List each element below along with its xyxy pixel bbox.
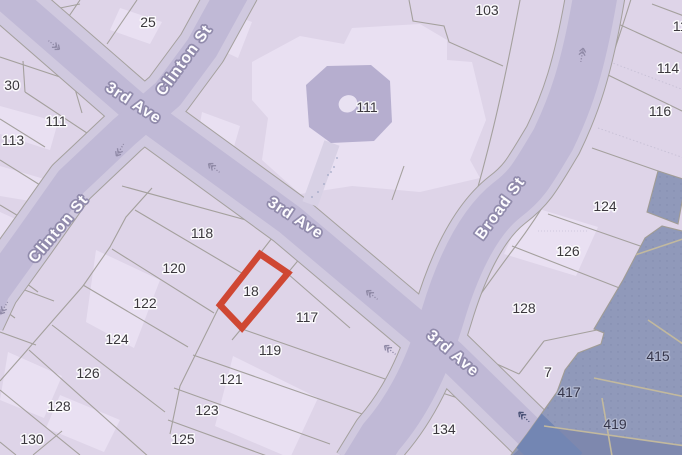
svg-text:18: 18 (243, 283, 259, 299)
svg-text:123: 123 (195, 402, 219, 418)
svg-text:103: 103 (475, 2, 499, 18)
svg-text:122: 122 (133, 295, 157, 311)
svg-text:130: 130 (20, 431, 44, 447)
svg-text:126: 126 (76, 365, 100, 381)
svg-text:124: 124 (105, 331, 129, 347)
svg-text:128: 128 (512, 300, 536, 316)
svg-text:117: 117 (296, 309, 319, 325)
svg-text:124: 124 (593, 198, 617, 214)
svg-text:417: 417 (557, 384, 581, 400)
svg-text:126: 126 (556, 243, 580, 259)
svg-text:111: 111 (356, 99, 377, 115)
svg-text:113: 113 (2, 132, 25, 148)
svg-text:111: 111 (45, 113, 66, 129)
svg-text:112: 112 (673, 18, 682, 34)
svg-text:419: 419 (603, 416, 627, 432)
svg-text:116: 116 (649, 103, 672, 119)
svg-text:7: 7 (544, 364, 552, 380)
svg-text:125: 125 (171, 431, 195, 447)
svg-text:114: 114 (657, 60, 680, 76)
svg-text:119: 119 (259, 342, 282, 358)
svg-text:121: 121 (219, 371, 243, 387)
svg-text:118: 118 (191, 225, 214, 241)
svg-text:120: 120 (162, 260, 186, 276)
svg-text:30: 30 (4, 77, 20, 93)
svg-text:25: 25 (140, 14, 156, 30)
svg-text:134: 134 (432, 421, 456, 437)
svg-text:128: 128 (47, 398, 71, 414)
svg-text:415: 415 (646, 348, 670, 364)
